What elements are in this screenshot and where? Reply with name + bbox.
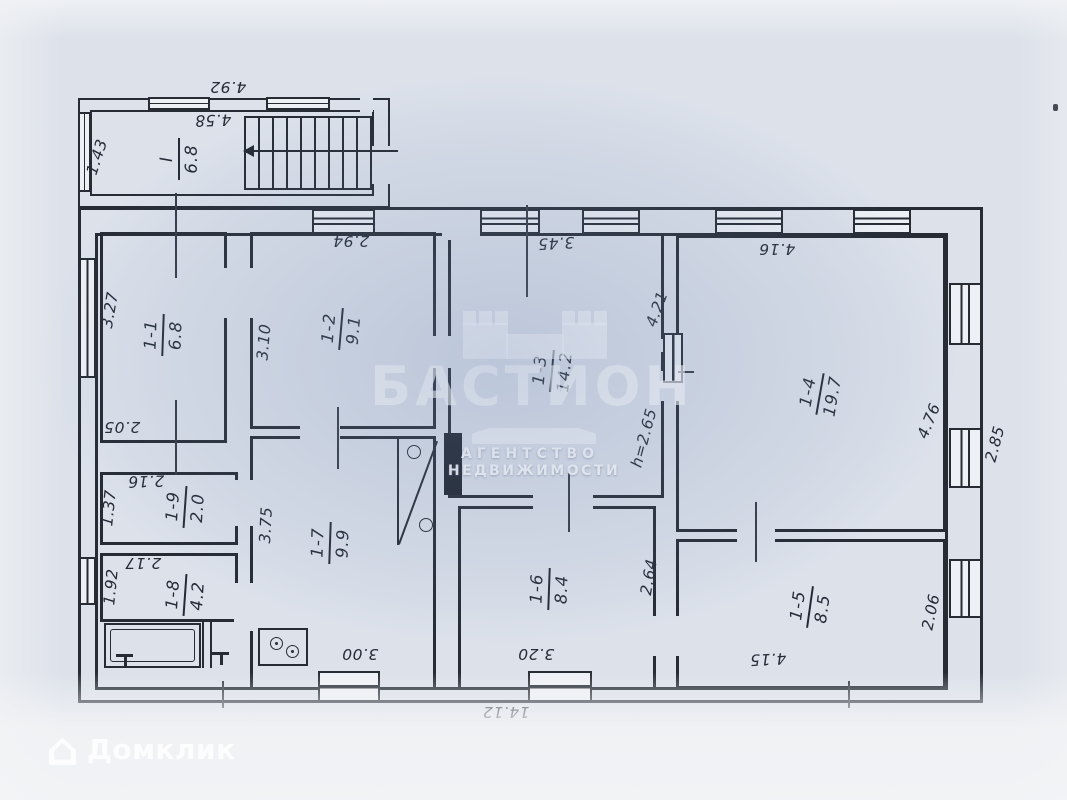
castle-icon [578, 311, 591, 325]
window [318, 671, 380, 702]
room-number: 1-7 [307, 521, 331, 564]
window [312, 209, 375, 234]
tap-icon [220, 652, 223, 665]
window [949, 428, 982, 488]
partition-wall [210, 620, 212, 668]
room-number: I [157, 138, 180, 180]
stove-circle [419, 518, 433, 532]
castle-icon [562, 323, 607, 359]
dim-tick [222, 681, 224, 708]
house-icon: ⌂ [46, 726, 79, 772]
door-gap [234, 480, 254, 526]
door-gap [300, 424, 340, 442]
window [528, 671, 592, 702]
gas-stove-burner-dot [275, 642, 278, 645]
window [949, 283, 982, 345]
dimension-label: 1.92 [100, 568, 122, 606]
room-label-1-4: 1-419.7 [795, 369, 846, 418]
gas-stove-outline [258, 628, 308, 666]
window [853, 209, 911, 234]
room-label-1-1: 1-16.8 [140, 313, 185, 357]
dimension-label: 4.15 [749, 649, 786, 669]
room-number: 1-1 [140, 313, 164, 356]
room-area: 6.8 [180, 144, 201, 173]
window [480, 209, 540, 234]
dimension-label: 4.58 [194, 110, 231, 129]
room-label-1-5: 1-58.5 [785, 583, 834, 631]
corner-stove-edge [397, 439, 399, 545]
dim-tick [755, 502, 757, 562]
watermark-banner-icon [472, 428, 596, 444]
window [79, 557, 96, 605]
dim-tick [175, 193, 177, 278]
dimension-label: 3.75 [256, 506, 276, 543]
bathtub-inner [110, 629, 195, 662]
castle-icon [594, 311, 607, 325]
dim-tick [848, 681, 850, 708]
dimension-label: 3.10 [253, 323, 274, 361]
photo-speck [1053, 104, 1058, 111]
door-gap [442, 228, 480, 240]
room-label-1-8: 1-84.2 [162, 573, 209, 618]
dim-tick [175, 400, 177, 475]
room-area: 9.1 [341, 315, 364, 346]
dim-tick [526, 205, 528, 297]
room-number: 1-6 [526, 567, 550, 610]
gas-stove-burner-dot [291, 650, 294, 653]
dimension-label: 4.92 [210, 78, 247, 96]
room-label-I: I6.8 [157, 138, 201, 180]
room-label-1-7: 1-79.9 [307, 521, 352, 565]
window [715, 209, 783, 234]
dimension-label: 2.85 [982, 424, 1009, 464]
floorplan-photo: I6.81-16.81-29.11-314.21-419.71-58.51-68… [0, 0, 1067, 800]
staircase [244, 116, 372, 190]
dimension-label: 2.94 [333, 232, 370, 250]
room-area: 8.5 [809, 593, 834, 625]
door-gap [360, 96, 373, 112]
room-area: 9.9 [330, 528, 352, 558]
castle-icon [463, 323, 508, 359]
partition-wall [202, 620, 204, 668]
door-gap [652, 616, 680, 656]
dimension-label: 3.20 [518, 645, 555, 663]
dimension-label: 4.16 [759, 240, 796, 258]
castle-icon [562, 311, 575, 325]
dimension-label: 3.45 [537, 233, 574, 253]
room-area: 8.4 [549, 574, 571, 604]
room-label-1-9: 1-92.0 [162, 485, 209, 530]
castle-icon [495, 311, 508, 325]
window [949, 559, 982, 618]
dimension-label: 2.17 [125, 554, 162, 572]
door-gap [234, 583, 254, 631]
room-area: 6.8 [163, 320, 185, 350]
domclick-logo: ⌂ Домклик [46, 726, 236, 772]
door-gap [533, 493, 593, 511]
castle-icon [463, 311, 476, 325]
room-number: 1-9 [162, 485, 188, 529]
dimension-label: 2.16 [127, 471, 164, 490]
window [582, 209, 640, 234]
tap-icon [124, 654, 127, 667]
castle-icon [479, 311, 492, 325]
dimension-label: 1.37 [98, 489, 120, 527]
room-label-1-6: 1-68.4 [526, 567, 571, 611]
window [266, 97, 330, 110]
dimension-label: 14.12 [483, 703, 530, 721]
door-gap [222, 268, 256, 318]
stair-arrow-head-icon [243, 145, 254, 157]
dimension-label: 3.00 [342, 645, 379, 663]
room-number: 1-8 [162, 573, 188, 617]
window [79, 258, 96, 378]
room-area: 2.0 [185, 492, 208, 523]
watermark-tagline-2: НЕДВИЖИМОСТИ [404, 463, 664, 479]
watermark-tagline-1: АГЕНТСТВО [405, 446, 655, 462]
dimension-label: 2.05 [104, 418, 141, 436]
room-label-1-2: 1-29.1 [317, 306, 364, 352]
window [148, 97, 210, 110]
watermark-brand: БАСТИОН [370, 360, 690, 414]
stair-direction-arrow [252, 150, 398, 152]
room-area: 4.2 [185, 580, 208, 611]
dim-tick [337, 407, 339, 469]
domclick-logo-text: Домклик [87, 733, 236, 766]
